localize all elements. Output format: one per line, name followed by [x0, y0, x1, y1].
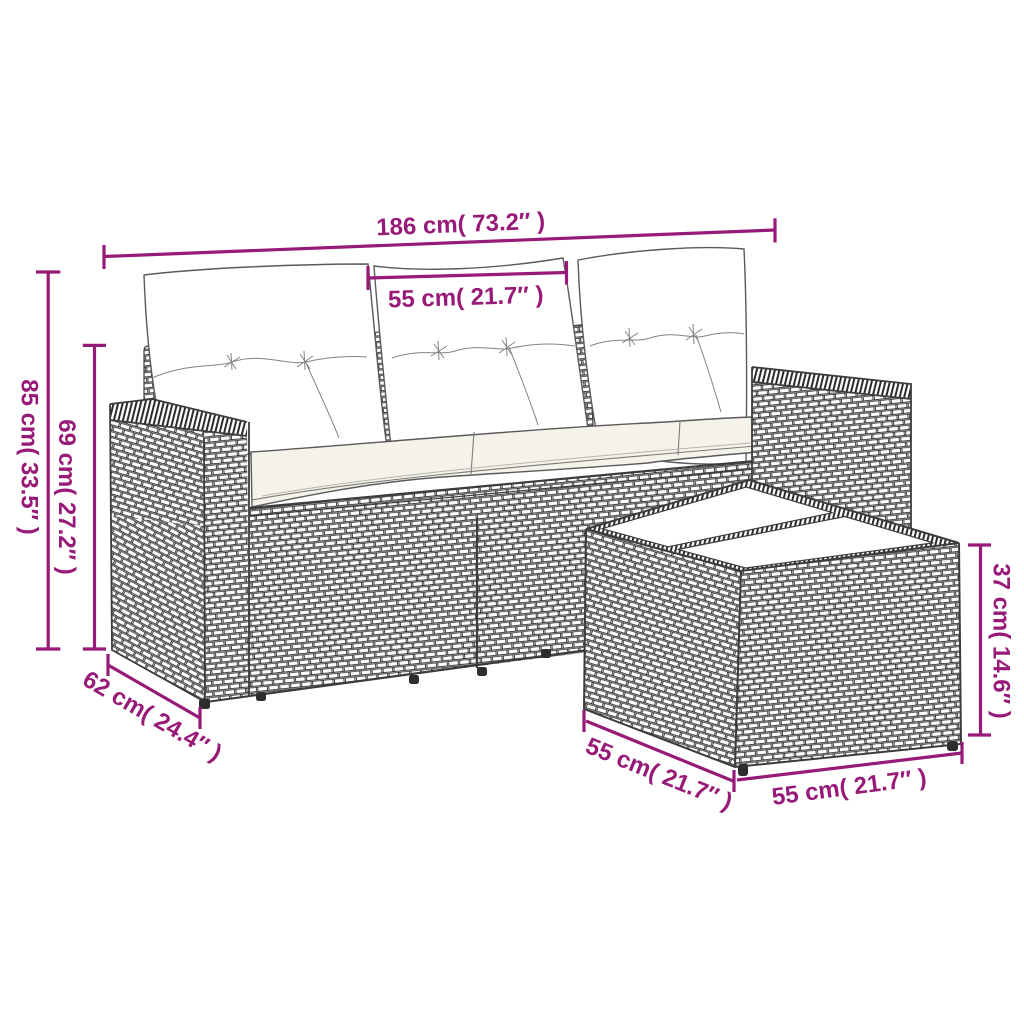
svg-text:55 cm( 21.7″ ): 55 cm( 21.7″ ) — [388, 282, 544, 314]
svg-text:37 cm( 14.6″ ): 37 cm( 14.6″ ) — [988, 563, 1015, 719]
svg-text:85 cm( 33.5″ ): 85 cm( 33.5″ ) — [16, 379, 43, 535]
svg-text:69 cm( 27.2″ ): 69 cm( 27.2″ ) — [53, 419, 80, 575]
